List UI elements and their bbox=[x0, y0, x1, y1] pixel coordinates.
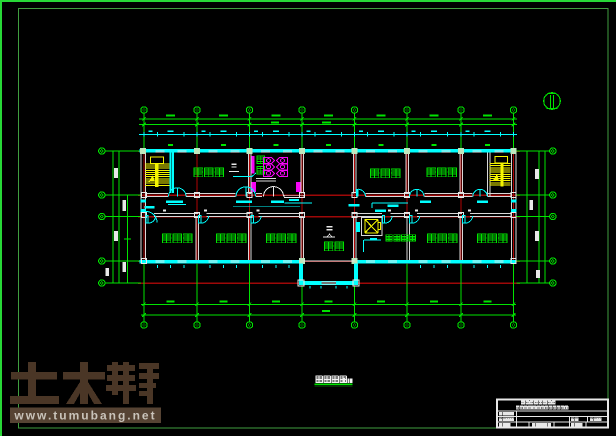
svg-text:www.tumubang.net: www.tumubang.net bbox=[13, 409, 156, 423]
